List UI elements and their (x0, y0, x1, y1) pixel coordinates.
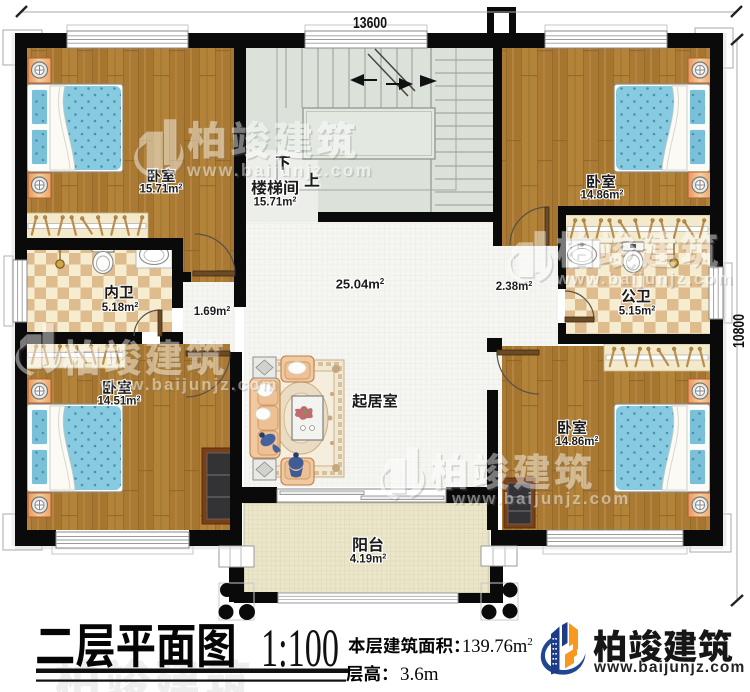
svg-text:14.86m2: 14.86m2 (581, 189, 624, 202)
svg-text:5.15m2: 5.15m2 (619, 305, 656, 318)
svg-text:www.baijunjz.com: www.baijunjz.com (99, 375, 278, 394)
svg-text:15.71m2: 15.71m2 (254, 196, 297, 209)
svg-text:1:100: 1:100 (261, 618, 339, 678)
svg-text:www.baijunjz.com: www.baijunjz.com (593, 659, 745, 676)
svg-text:www.baijunjz.com: www.baijunjz.com (451, 489, 630, 508)
svg-text:1.69m2: 1.69m2 (194, 305, 231, 318)
svg-text:www.baijunjz.com: www.baijunjz.com (186, 160, 373, 180)
svg-text:25.04m2: 25.04m2 (336, 277, 385, 292)
svg-text:www.baijunjz.com: www.baijunjz.com (555, 269, 734, 288)
svg-text:5.18m2: 5.18m2 (102, 301, 139, 314)
svg-text:14.51m2: 14.51m2 (98, 395, 141, 408)
svg-text:4.19m2: 4.19m2 (350, 553, 387, 566)
svg-text:15.71m2: 15.71m2 (140, 183, 183, 196)
svg-text:139.76m2: 139.76m2 (462, 636, 533, 657)
svg-text:10800: 10800 (731, 314, 748, 348)
svg-text:13600: 13600 (353, 15, 387, 32)
svg-text:3.6m: 3.6m (400, 664, 439, 685)
svg-text:14.86m2: 14.86m2 (556, 435, 599, 448)
